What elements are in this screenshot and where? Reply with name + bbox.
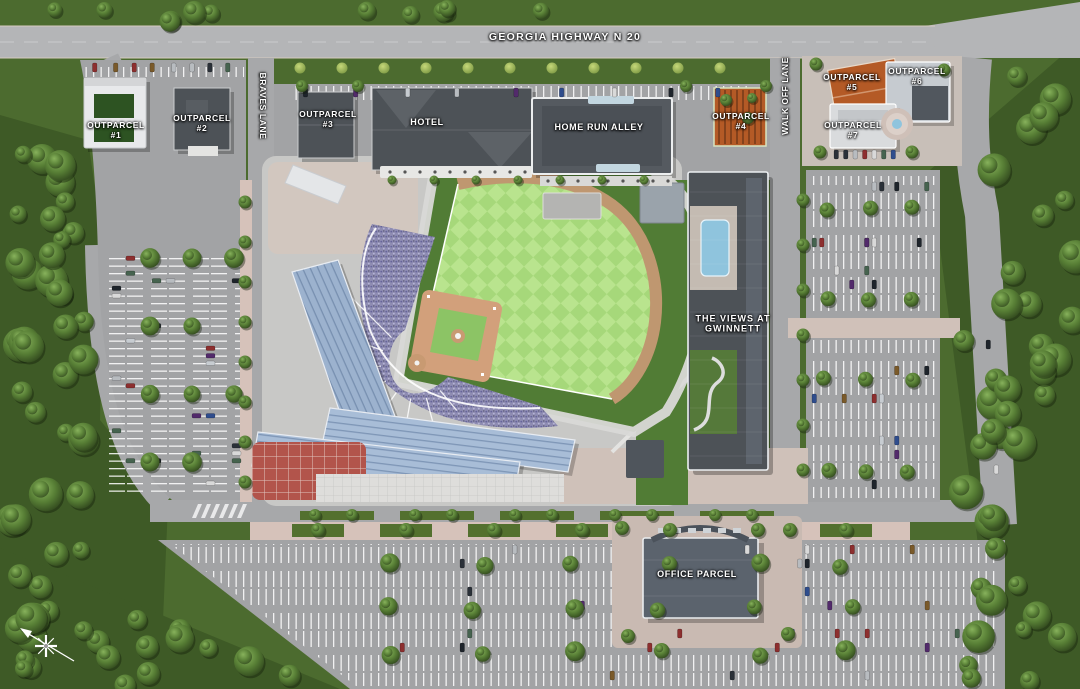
office-parcel-label: OFFICE PARCEL: [657, 569, 737, 579]
home-run-alley-label: HOME RUN ALLEY: [554, 122, 643, 132]
paver-plaza: [316, 474, 564, 502]
outparcel-2-label: OUTPARCEL #2: [173, 114, 231, 134]
outparcel-5-num: #5: [823, 83, 881, 93]
outparcel-7-num: #7: [824, 131, 882, 141]
outparcel-1-label: OUTPARCEL #1: [87, 121, 145, 141]
outparcel-6-num: #6: [888, 77, 946, 87]
site-plan: GEORGIA HIGHWAY N 20 BRAVES LANE WALK OF…: [0, 0, 1080, 689]
site-plan-canvas: [0, 0, 1080, 689]
outparcel-4-label: OUTPARCEL #4: [712, 112, 770, 132]
outparcel-4-num: #4: [712, 122, 770, 132]
outparcel-1-num: #1: [87, 131, 145, 141]
views-label-line1: THE VIEWS AT: [696, 314, 771, 324]
braves-lane-label: BRAVES LANE: [257, 73, 267, 140]
highway-label: GEORGIA HIGHWAY N 20: [489, 31, 641, 43]
views-label-line2: GWINNETT: [696, 324, 771, 334]
walk-off-lane-label: WALK OFF LANE: [781, 57, 791, 135]
views-at-gwinnett-label: THE VIEWS AT GWINNETT: [696, 314, 771, 335]
maintenance-building: [640, 183, 684, 223]
outparcel-7-label: OUTPARCEL #7: [824, 121, 882, 141]
outparcel-5-label: OUTPARCEL #5: [823, 73, 881, 93]
outparcel-6-label: OUTPARCEL #6: [888, 67, 946, 87]
office-building: [612, 516, 802, 648]
outparcel-3-label: OUTPARCEL #3: [299, 110, 357, 130]
hotel-label: HOTEL: [410, 117, 444, 127]
swimming-pool: [701, 220, 729, 276]
outparcel-3-num: #3: [299, 120, 357, 130]
outparcel-2-num: #2: [173, 124, 231, 134]
